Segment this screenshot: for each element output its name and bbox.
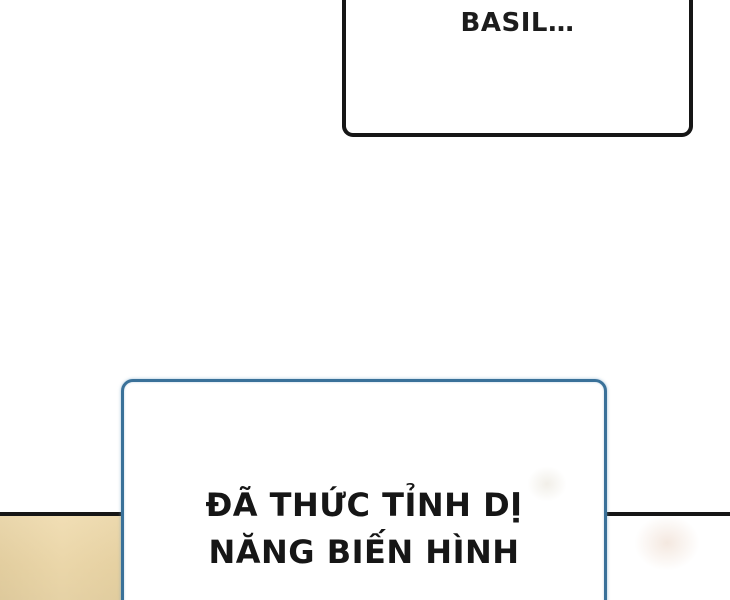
floor-texture: [0, 516, 124, 600]
caption-line-2: NĂNG BIẾN HÌNH: [124, 529, 604, 576]
comic-panel: BASIL… ĐÃ THỨC TỈNH DỊ NĂNG BIẾN HÌNH: [0, 0, 730, 600]
caption-line-1: ĐÃ THỨC TỈNH DỊ: [124, 482, 604, 529]
caption-box-bottom: ĐÃ THỨC TỈNH DỊ NĂNG BIẾN HÌNH: [121, 379, 607, 600]
caption-box-text: ĐÃ THỨC TỈNH DỊ NĂNG BIẾN HÌNH: [124, 482, 604, 576]
speech-bubble-top-text: BASIL…: [346, 8, 689, 38]
floor-area: [0, 516, 124, 600]
paper-smudge: [634, 515, 700, 571]
speech-bubble-top: BASIL…: [342, 0, 693, 137]
